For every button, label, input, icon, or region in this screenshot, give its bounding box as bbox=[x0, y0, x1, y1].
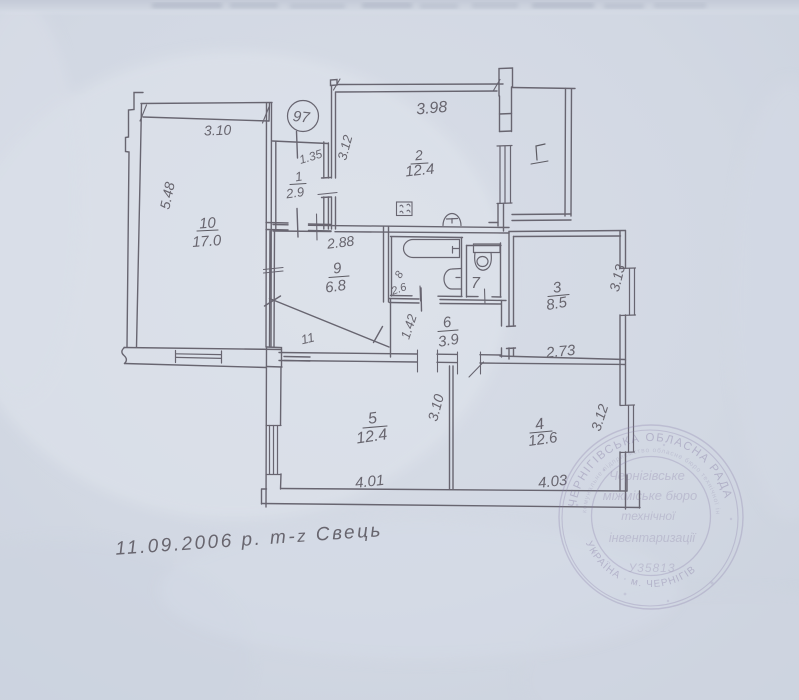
svg-text:У35813: У35813 bbox=[627, 561, 675, 575]
svg-text:Чернігівське: Чернігівське bbox=[609, 468, 685, 483]
svg-text:12.4: 12.4 bbox=[404, 161, 435, 181]
svg-text:2.73: 2.73 bbox=[544, 342, 576, 362]
svg-text:97: 97 bbox=[292, 108, 311, 127]
svg-text:технічної: технічної bbox=[621, 509, 676, 523]
svg-text:інвентаризації: інвентаризації bbox=[609, 531, 697, 545]
svg-text:7: 7 bbox=[471, 275, 481, 292]
svg-text:3.10: 3.10 bbox=[204, 122, 232, 139]
svg-text:6.8: 6.8 bbox=[324, 277, 348, 297]
svg-text:3.98: 3.98 bbox=[415, 99, 448, 119]
svg-text:3.9: 3.9 bbox=[437, 331, 461, 351]
svg-text:міжміське бюро: міжміське бюро bbox=[603, 488, 697, 503]
svg-text:2.9: 2.9 bbox=[284, 184, 305, 202]
svg-text:17.0: 17.0 bbox=[192, 232, 223, 251]
